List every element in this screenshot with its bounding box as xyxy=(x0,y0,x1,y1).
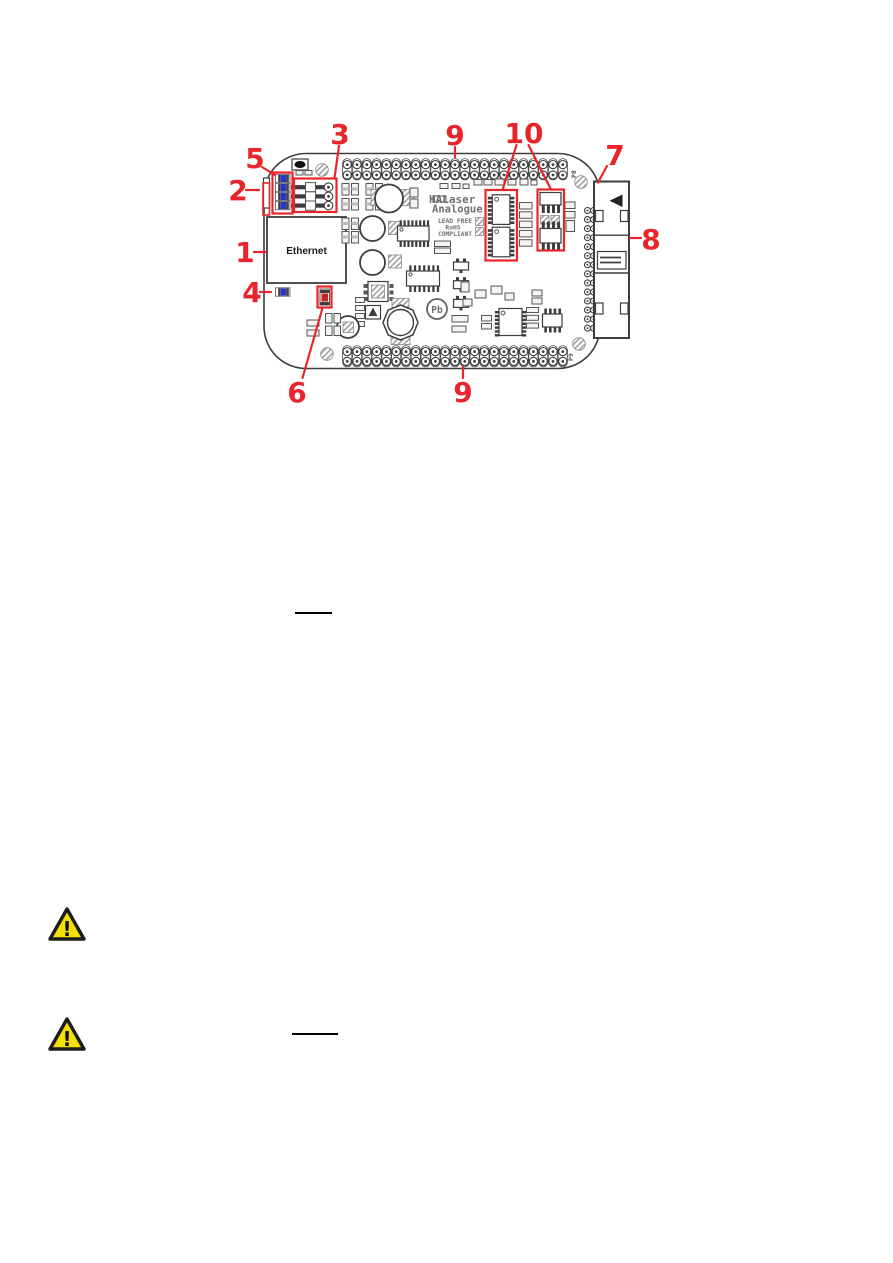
smd-component xyxy=(435,248,451,254)
smd-component xyxy=(410,188,418,197)
callout-3: 3 xyxy=(330,118,349,151)
svg-text:COMPLIANT: COMPLIANT xyxy=(438,231,472,238)
board-figure: Ethernet xyxy=(0,0,893,420)
ferrite-bead xyxy=(292,159,308,170)
ethernet-port: Ethernet xyxy=(267,217,346,283)
component-red-core xyxy=(322,294,329,302)
callout-7: 7 xyxy=(605,139,624,172)
svg-text:Analogue: Analogue xyxy=(432,204,483,216)
callout-5: 5 xyxy=(245,142,264,175)
mounting-hole xyxy=(321,348,334,361)
smd-component xyxy=(476,228,484,236)
warning-glyph: ! xyxy=(62,917,71,941)
warning-glyph: ! xyxy=(62,1027,71,1051)
header-ref-p8: P8 xyxy=(570,170,578,178)
svg-text:Pb: Pb xyxy=(431,305,443,316)
mounting-hole xyxy=(316,164,329,177)
brand-text: HALaser Analogue xyxy=(429,193,483,216)
link-underline[interactable] xyxy=(295,612,332,614)
smd-component xyxy=(476,218,484,226)
mounting-hole xyxy=(573,338,586,351)
link-underline[interactable] xyxy=(292,1033,338,1035)
callout-10: 10 xyxy=(505,117,544,150)
callout-8: 8 xyxy=(641,223,660,256)
diode xyxy=(366,306,381,320)
callout-4: 4 xyxy=(242,276,261,309)
power-connector xyxy=(594,182,629,339)
soic14-chip xyxy=(495,309,526,337)
header-ref-p9: P9 xyxy=(567,353,575,361)
smd-component xyxy=(435,241,451,247)
warning-icon: ! xyxy=(47,1016,87,1053)
callout-6: 6 xyxy=(287,376,306,409)
callout-9-top: 9 xyxy=(445,119,464,152)
callout-2: 2 xyxy=(228,174,247,207)
ethernet-label: Ethernet xyxy=(286,246,327,257)
smd-component xyxy=(452,316,468,323)
warning-icon: ! xyxy=(47,906,87,943)
callout-9-bottom: 9 xyxy=(453,376,472,409)
document-page: Ethernet xyxy=(0,0,893,1263)
callout-1: 1 xyxy=(235,236,254,269)
smd-component xyxy=(410,199,418,208)
